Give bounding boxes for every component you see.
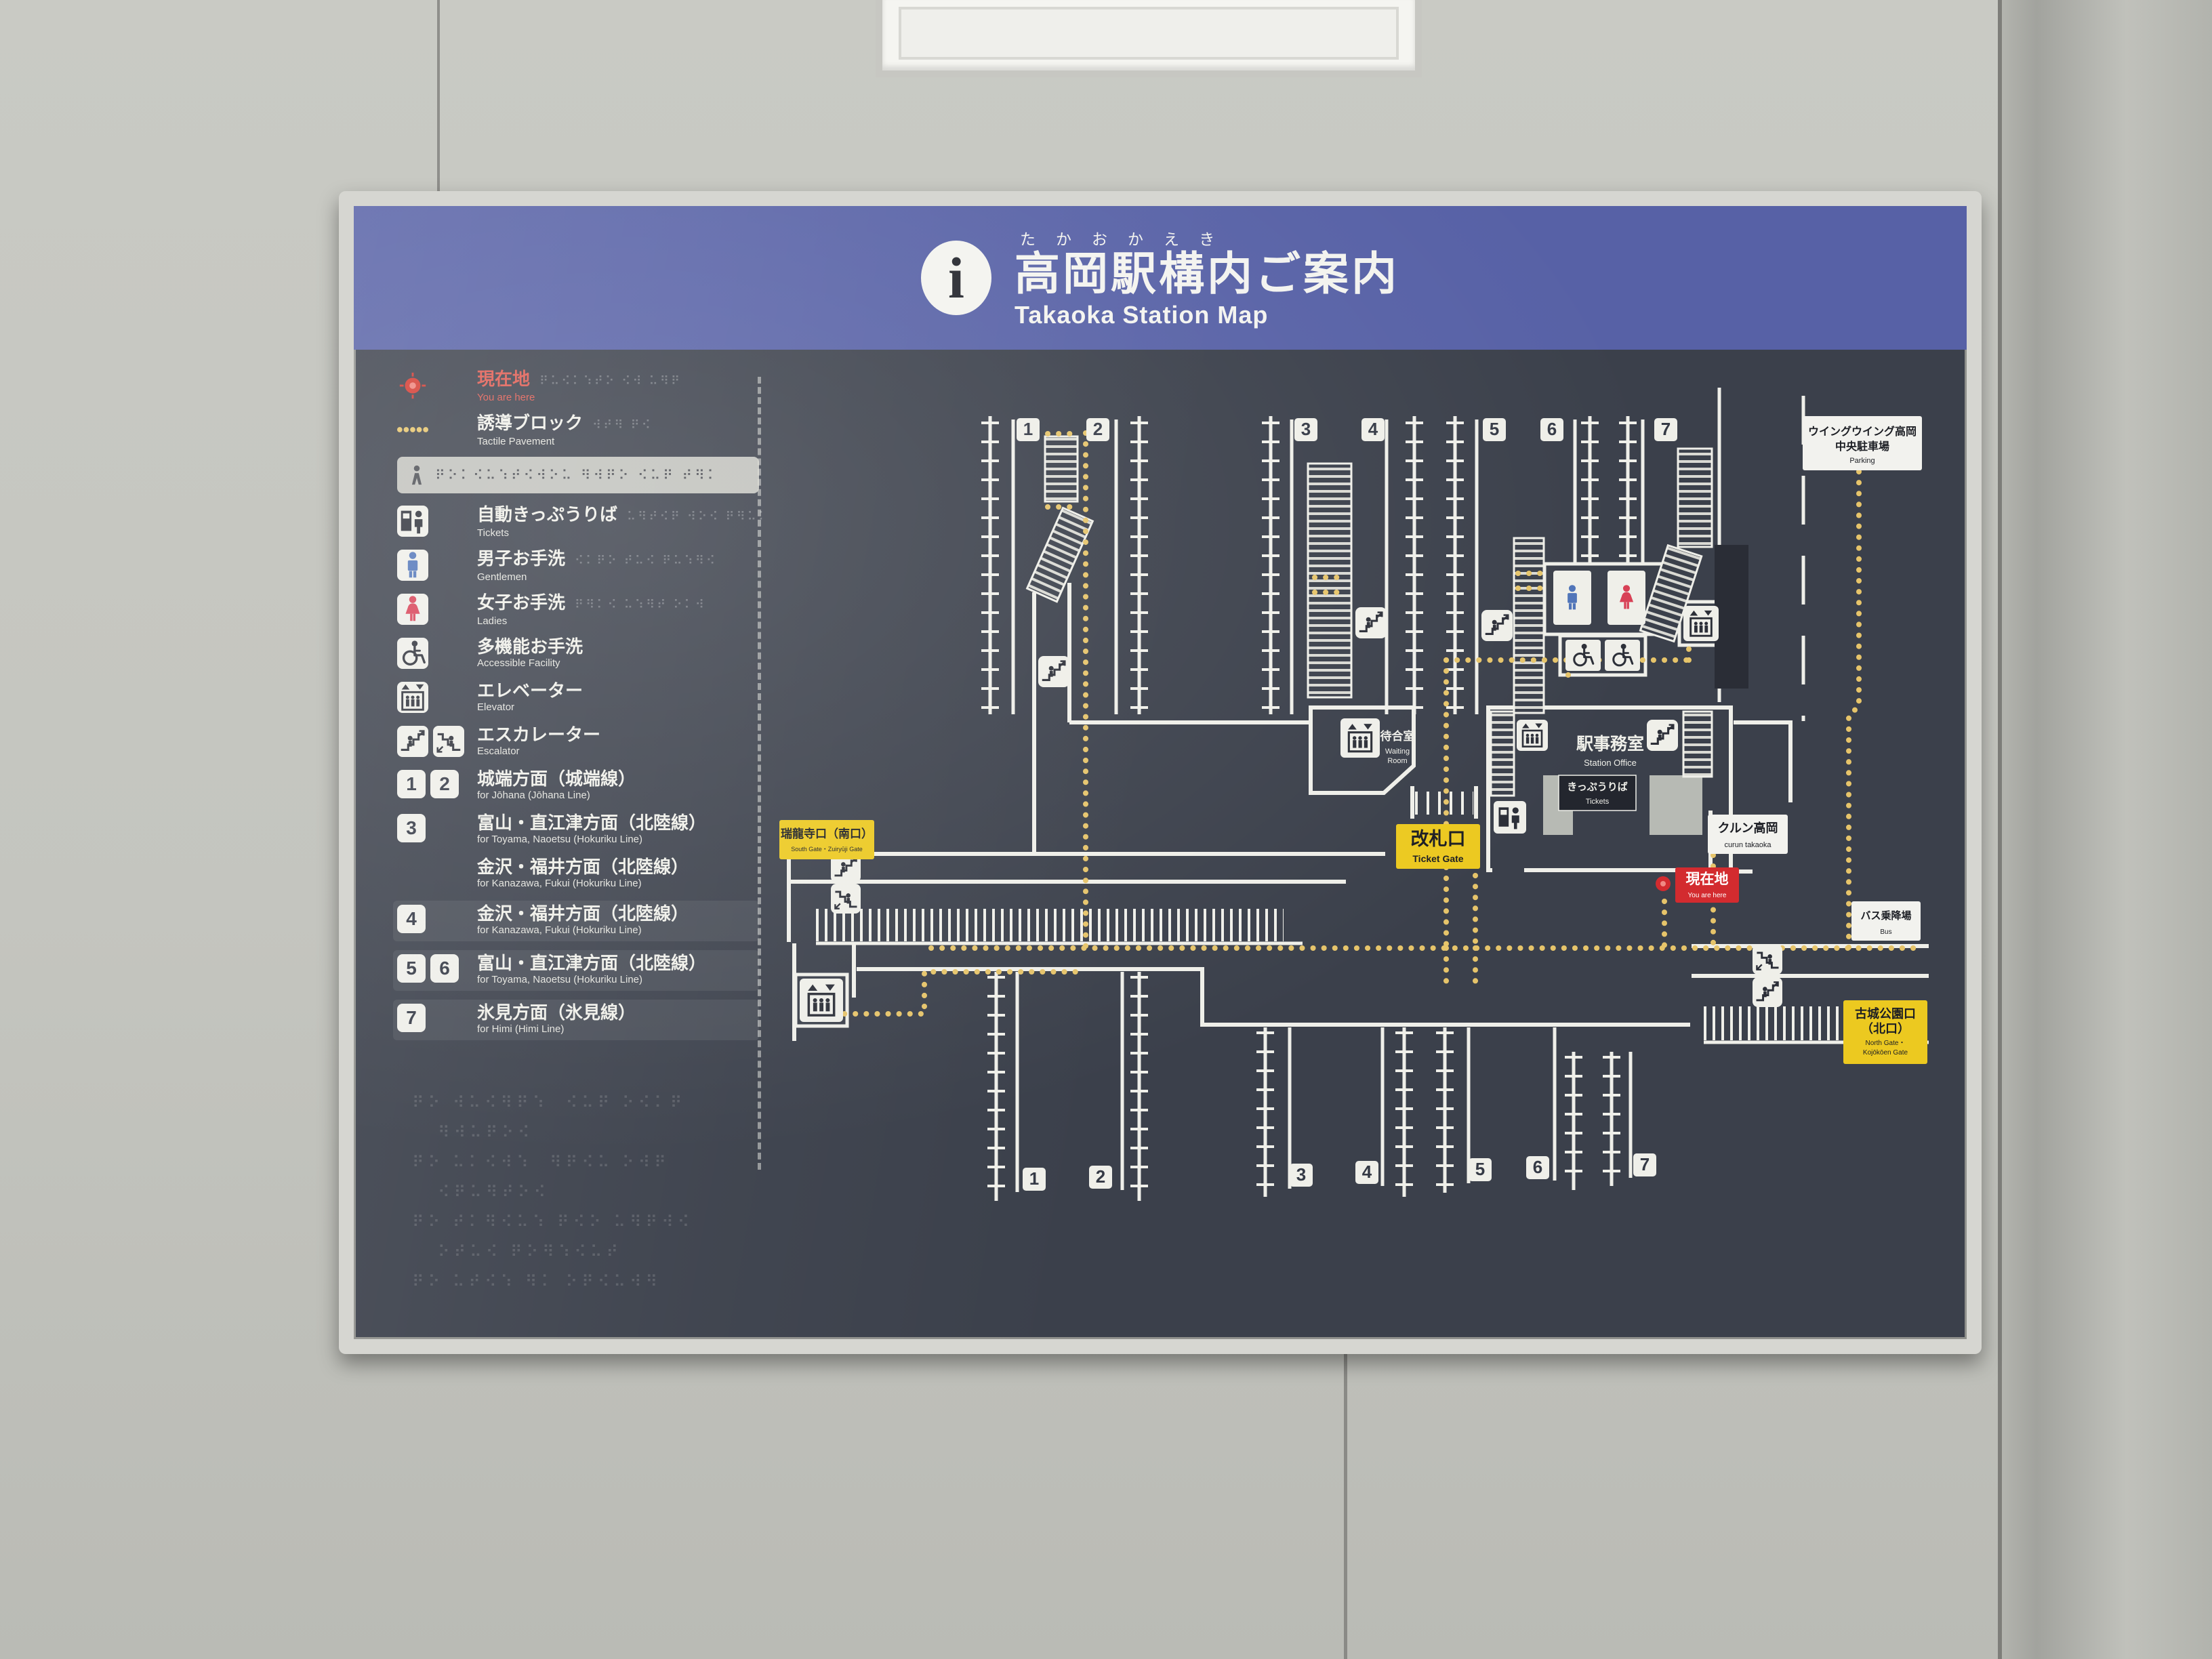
legend-item: 金沢・福井方面（北陸線） for Kanazawa, Fukui (Hokuri… xyxy=(397,857,759,892)
legend-item: 現在地⠟⠥⠪⠅⠱⠞⠕ ⠪⠺ ⠥⠻⠟ You are here xyxy=(397,369,759,404)
legend-item-icons xyxy=(397,680,477,713)
escalator-icon xyxy=(1481,610,1513,641)
legend-item-jp: エレベーター xyxy=(477,680,583,701)
waiting-room-label: 待合室 Waiting Room xyxy=(1380,729,1415,765)
svg-text:1: 1 xyxy=(1023,419,1033,439)
tickets-office-label: きっぷうりば Tickets xyxy=(1559,775,1636,811)
svg-text:2: 2 xyxy=(1096,1166,1105,1187)
parking-label: ウイングウイング高岡 中央駐車場 Parking xyxy=(1803,416,1922,470)
legend-item-jp: 金沢・福井方面（北陸線） xyxy=(477,857,689,877)
man-icon xyxy=(397,550,428,581)
elevator-icon xyxy=(397,682,428,713)
legend-item-en: You are here xyxy=(477,391,682,404)
svg-text:中央駐車場: 中央駐車場 xyxy=(1835,440,1889,453)
south-gate-label: 瑞龍寺口（南口） South Gate・Zuiryūji Gate xyxy=(779,820,874,859)
braille-annotation: ⠥⠻⠞⠪⠟ ⠺⠕⠪ ⠟⠻⠥⠅ xyxy=(627,510,769,523)
tracks-lower xyxy=(857,969,1690,1201)
legend-item-en: Gentlemen xyxy=(477,571,717,583)
platform-number-badge: 1 xyxy=(397,770,426,798)
legend-item-en: Tickets xyxy=(477,527,769,539)
legend-item: 自動きっぷうりば⠥⠻⠞⠪⠟ ⠺⠕⠪ ⠟⠻⠥⠅ Tickets xyxy=(397,504,759,539)
platform-badge: 7 xyxy=(1654,418,1677,441)
svg-text:Bus: Bus xyxy=(1880,928,1891,936)
legend-item-en: for Jōhana (Jōhana Line) xyxy=(477,789,636,802)
platform-number-badge: 2 xyxy=(430,770,459,798)
legend-item-jp: 誘導ブロック⠺⠞⠻ ⠟⠪ xyxy=(477,413,653,435)
board-title-block: たかおかえき 高岡駅構内ご案内 Takaoka Station Map xyxy=(1015,226,1399,329)
legend-item: 3 富山・直江津方面（北陸線） for Toyama, Naoetsu (Hok… xyxy=(397,813,759,848)
ticket-machine-icon xyxy=(1494,801,1526,834)
escalator-icon xyxy=(433,726,464,757)
station-office-label: 駅事務室 Station Office xyxy=(1576,734,1644,768)
svg-text:古城公園口: 古城公園口 xyxy=(1855,1006,1916,1021)
legend-item-icons xyxy=(397,413,477,445)
escalator-icon xyxy=(1753,977,1782,1007)
legend-item: 56 富山・直江津方面（北陸線） for Toyama, Naoetsu (Ho… xyxy=(393,950,759,991)
svg-text:Ticket Gate: Ticket Gate xyxy=(1412,853,1463,864)
platform-badge: 6 xyxy=(1526,1156,1549,1179)
svg-text:North Gate・: North Gate・ xyxy=(1866,1040,1906,1047)
title-furigana: たかおかえき xyxy=(1020,226,1399,249)
bus-label: バス乗降場 Bus xyxy=(1851,901,1921,941)
escalator-icon xyxy=(397,726,428,757)
svg-text:バス乗降場: バス乗降場 xyxy=(1860,909,1911,922)
legend-item-icons xyxy=(397,504,477,537)
legend-item-icons: 12 xyxy=(397,769,477,798)
north-gate-label: 古城公園口 （北口） North Gate・ Kojōkōen Gate xyxy=(1843,1000,1927,1064)
platform-badge: 7 xyxy=(1633,1153,1656,1176)
legend-item-jp: 女子お手洗⠟⠻⠅⠪ ⠥⠱⠻⠞ ⠕⠅⠺ xyxy=(477,592,706,615)
platform-number-badge: 3 xyxy=(397,814,426,842)
legend-item: エスカレーター Escalator xyxy=(397,724,759,760)
svg-text:Room: Room xyxy=(1387,757,1407,765)
platform-number-badge: 7 xyxy=(397,1004,426,1032)
wall-seam xyxy=(1344,1353,1347,1659)
legend-item-text: 多機能お手洗 Accessible Facility xyxy=(477,636,583,670)
legend-item-icons xyxy=(397,592,477,625)
platform-number-badge: 6 xyxy=(430,954,459,983)
svg-text:Parking: Parking xyxy=(1849,457,1875,465)
stairs-platform7-upper xyxy=(1678,449,1712,547)
legend-item-text: 金沢・福井方面（北陸線） for Kanazawa, Fukui (Hokuri… xyxy=(477,857,689,890)
platform-badge: 4 xyxy=(1355,1161,1378,1184)
legend-item-icons: 56 xyxy=(397,953,477,983)
platform-step-line xyxy=(857,969,1690,1025)
legend-item-jp: 現在地⠟⠥⠪⠅⠱⠞⠕ ⠪⠺ ⠥⠻⠟ xyxy=(477,369,682,391)
legend-item-icons: 4 xyxy=(397,903,477,933)
platform-badge: 6 xyxy=(1540,418,1563,441)
wall-seam xyxy=(437,0,440,198)
svg-text:6: 6 xyxy=(1533,1157,1542,1177)
platform-badge: 5 xyxy=(1469,1158,1492,1181)
svg-text:4: 4 xyxy=(1362,1162,1372,1182)
escalator-icon xyxy=(1647,720,1678,751)
woman-icon xyxy=(397,594,428,625)
platform-badge: 4 xyxy=(1361,418,1385,441)
legend-item-en: for Kanazawa, Fukui (Hokuriku Line) xyxy=(477,877,689,890)
elevator-icon xyxy=(800,979,843,1022)
board-title: 高岡駅構内ご案内 xyxy=(1015,251,1399,298)
svg-text:5: 5 xyxy=(1475,1159,1485,1179)
platform-badge: 3 xyxy=(1290,1164,1313,1187)
stairs-platform34 xyxy=(1308,464,1351,697)
braille-paragraph: ⠟⠕ ⠺⠥⠪⠻⠟⠱ ⠪⠥⠟ ⠕⠪⠅⠟ ⠻⠺⠥⠟⠕⠪ ⠟⠕ ⠥⠅⠪⠺⠱ ⠻⠟⠪⠥ … xyxy=(412,1088,693,1297)
svg-text:現在地: 現在地 xyxy=(1686,871,1729,887)
board-subtitle: Takaoka Station Map xyxy=(1015,301,1399,329)
braille-annotation: ⠟⠻⠅⠪ ⠥⠱⠻⠞ ⠕⠅⠺ xyxy=(575,598,706,611)
board-header: i たかおかえき 高岡駅構内ご案内 Takaoka Station Map xyxy=(354,206,1967,350)
legend-item: 誘導ブロック⠺⠞⠻ ⠟⠪ Tactile Pavement xyxy=(397,413,759,448)
wall-frame-object xyxy=(876,0,1422,77)
svg-text:待合室: 待合室 xyxy=(1380,729,1415,743)
escalator-icon xyxy=(1038,656,1069,687)
platform-number-badge: 5 xyxy=(397,954,426,983)
legend-item: エレベーター Elevator xyxy=(397,680,759,716)
legend-item-jp: 氷見方面（氷見線） xyxy=(477,1002,636,1023)
braille-annotation: ⠪⠅⠟⠕ ⠞⠥⠪ ⠟⠥⠱⠻⠪ xyxy=(575,554,717,567)
svg-text:1: 1 xyxy=(1029,1168,1039,1189)
legend-item-text: 城端方面（城端線） for Jōhana (Jōhana Line) xyxy=(477,769,636,802)
svg-text:7: 7 xyxy=(1661,419,1671,439)
legend-item-text: 誘導ブロック⠺⠞⠻ ⠟⠪ Tactile Pavement xyxy=(477,413,653,448)
svg-text:Kojōkōen Gate: Kojōkōen Gate xyxy=(1863,1049,1908,1057)
legend-item-text: エスカレーター Escalator xyxy=(477,724,600,758)
wall-right-panel xyxy=(1998,0,2212,1659)
legend-item-icons xyxy=(397,857,477,858)
legend-item-en: for Himi (Himi Line) xyxy=(477,1023,636,1036)
legend-item-text: エレベーター Elevator xyxy=(477,680,583,714)
legend-item-text: 金沢・福井方面（北陸線） for Kanazawa, Fukui (Hokuri… xyxy=(477,903,689,937)
floor-gray-right xyxy=(1650,775,1702,835)
svg-text:ウイングウイング高岡: ウイングウイング高岡 xyxy=(1808,425,1917,438)
platform-number-badge: 4 xyxy=(397,905,426,933)
legend-item-en: for Toyama, Naoetsu (Hokuriku Line) xyxy=(477,973,706,986)
wheelchair-icon xyxy=(1565,640,1601,671)
legend-item-icons: 7 xyxy=(397,1002,477,1032)
legend-item-jp: 城端方面（城端線） xyxy=(477,769,636,789)
stairs-platform12-diagonal xyxy=(1027,508,1093,601)
stairs-office-right xyxy=(1683,712,1712,777)
curun-wall xyxy=(1734,722,1790,802)
platform-badge: 3 xyxy=(1294,418,1317,441)
platform-badge: 1 xyxy=(1017,418,1040,441)
legend-item-text: 富山・直江津方面（北陸線） for Toyama, Naoetsu (Hokur… xyxy=(477,953,706,986)
svg-text:curun takaoka: curun takaoka xyxy=(1724,841,1771,849)
legend-item-icons xyxy=(397,724,477,757)
svg-text:You are here: You are here xyxy=(1688,892,1727,899)
legend-item-jp: 自動きっぷうりば⠥⠻⠞⠪⠟ ⠺⠕⠪ ⠟⠻⠥⠅ xyxy=(477,504,769,527)
elevator-icon xyxy=(1683,606,1719,641)
legend-item-jp: 男子お手洗⠪⠅⠟⠕ ⠞⠥⠪ ⠟⠥⠱⠻⠪ xyxy=(477,548,717,571)
tactile-icon xyxy=(397,414,428,445)
legend-item-text: 男子お手洗⠪⠅⠟⠕ ⠞⠥⠪ ⠟⠥⠱⠻⠪ Gentlemen xyxy=(477,548,717,583)
information-icon: i xyxy=(921,241,991,315)
svg-text:7: 7 xyxy=(1640,1154,1650,1174)
svg-text:きっぷうりば: きっぷうりば xyxy=(1567,781,1627,793)
legend-item: 7 氷見方面（氷見線） for Himi (Himi Line) xyxy=(393,1000,759,1040)
braille-strip: ⠟⠕⠅⠪⠥⠱⠞⠪⠺⠕⠥ ⠻⠺⠟⠕ ⠪⠥⠟ ⠞⠻⠅ xyxy=(397,457,759,493)
legend-item-text: 女子お手洗⠟⠻⠅⠪ ⠥⠱⠻⠞ ⠕⠅⠺ Ladies xyxy=(477,592,706,628)
legend-item-text: 氷見方面（氷見線） for Himi (Himi Line) xyxy=(477,1002,636,1036)
escalator-icon xyxy=(831,884,861,914)
curun-takaoka-label: クルン高岡 curun takaoka xyxy=(1708,815,1788,854)
station-map-board: i たかおかえき 高岡駅構内ご案内 Takaoka Station Map 現在… xyxy=(339,191,1982,1354)
stairs-platform12-upper xyxy=(1045,436,1078,501)
dot-icon xyxy=(397,370,428,401)
escalator-icon xyxy=(1355,607,1387,638)
svg-text:3: 3 xyxy=(1301,419,1311,439)
stairs-office-left xyxy=(1491,712,1514,796)
braille-annotation: ⠟⠥⠪⠅⠱⠞⠕ ⠪⠺ ⠥⠻⠟ xyxy=(539,374,682,388)
svg-text:4: 4 xyxy=(1368,419,1378,439)
svg-text:2: 2 xyxy=(1093,419,1103,439)
platform-badge: 1 xyxy=(1023,1168,1046,1191)
machine-icon xyxy=(397,506,428,537)
platform-badges-bottom: 1 2 3 4 5 6 7 xyxy=(1023,1153,1656,1191)
legend-item: 4 金沢・福井方面（北陸線） for Kanazawa, Fukui (Hoku… xyxy=(393,901,759,941)
photo-of-station-map-sign: i たかおかえき 高岡駅構内ご案内 Takaoka Station Map 現在… xyxy=(0,0,2212,1659)
svg-text:South Gate・Zuiryūji Gate: South Gate・Zuiryūji Gate xyxy=(791,846,863,853)
braille-annotation: ⠺⠞⠻ ⠟⠪ xyxy=(592,418,653,432)
svg-text:改札口: 改札口 xyxy=(1411,829,1466,849)
legend-item-en: for Kanazawa, Fukui (Hokuriku Line) xyxy=(477,924,689,937)
svg-text:駅事務室: 駅事務室 xyxy=(1576,734,1644,754)
dark-wall xyxy=(1715,545,1748,689)
legend-item-text: 自動きっぷうりば⠥⠻⠞⠪⠟ ⠺⠕⠪ ⠟⠻⠥⠅ Tickets xyxy=(477,504,769,539)
ladies-icon xyxy=(1607,571,1645,625)
ticket-gate-label: 改札口 Ticket Gate xyxy=(1396,824,1480,869)
legend-item-text: 現在地⠟⠥⠪⠅⠱⠞⠕ ⠪⠺ ⠥⠻⠟ You are here xyxy=(477,369,682,404)
wheelchair-icon xyxy=(1605,640,1640,671)
platform-badge: 2 xyxy=(1089,1166,1112,1189)
legend-item-jp: 富山・直江津方面（北陸線） xyxy=(477,953,706,973)
legend-item-jp: 多機能お手洗 xyxy=(477,636,583,657)
svg-text:6: 6 xyxy=(1547,419,1557,439)
legend-item: 多機能お手洗 Accessible Facility xyxy=(397,636,759,672)
legend-item-text: 富山・直江津方面（北陸線） for Toyama, Naoetsu (Hokur… xyxy=(477,813,706,846)
svg-text:瑞龍寺口（南口）: 瑞龍寺口（南口） xyxy=(781,827,873,840)
platform-badge: 2 xyxy=(1086,418,1109,441)
stairs-platform56 xyxy=(1514,538,1544,713)
svg-text:Tickets: Tickets xyxy=(1586,798,1610,806)
wheelchair-icon xyxy=(397,638,428,669)
platform-badge: 5 xyxy=(1483,418,1506,441)
wall-frame-inner xyxy=(899,7,1399,60)
legend-item: 男子お手洗⠪⠅⠟⠕ ⠞⠥⠪ ⠟⠥⠱⠻⠪ Gentlemen xyxy=(397,548,759,583)
svg-text:クルン高岡: クルン高岡 xyxy=(1717,821,1778,835)
legend: 現在地⠟⠥⠪⠅⠱⠞⠕ ⠪⠺ ⠥⠻⠟ You are here 誘導ブロック⠺⠞⠻… xyxy=(397,369,759,1049)
svg-text:3: 3 xyxy=(1296,1164,1306,1185)
svg-text:（北口）: （北口） xyxy=(1861,1022,1910,1036)
legend-item-jp: エスカレーター xyxy=(477,724,600,745)
legend-item-en: Tactile Pavement xyxy=(477,435,653,448)
legend-item-en: Elevator xyxy=(477,701,583,714)
legend-item-en: Escalator xyxy=(477,745,600,758)
legend-item: 女子お手洗⠟⠻⠅⠪ ⠥⠱⠻⠞ ⠕⠅⠺ Ladies xyxy=(397,592,759,628)
escalator-icon xyxy=(1753,945,1782,975)
legend-item-en: Ladies xyxy=(477,615,706,628)
legend-item-icons xyxy=(397,548,477,581)
svg-text:5: 5 xyxy=(1490,419,1499,439)
legend-item-icons xyxy=(397,636,477,669)
you-are-here-marker: 現在地 You are here xyxy=(1656,867,1739,903)
legend-item-icons xyxy=(397,369,477,401)
gentlemen-icon xyxy=(1553,571,1591,625)
legend-item: 12 城端方面（城端線） for Jōhana (Jōhana Line) xyxy=(397,769,759,804)
legend-item-icons: 3 xyxy=(397,813,477,842)
legend-item-jp: 金沢・福井方面（北陸線） xyxy=(477,903,689,924)
elevator-icon xyxy=(1517,720,1548,751)
legend-item-en: Accessible Facility xyxy=(477,657,583,670)
station-floor-map: ウイングウイング高岡 中央駐車場 Parking 瑞龍寺口（南口） South … xyxy=(769,369,1950,1320)
svg-text:Station Office: Station Office xyxy=(1584,758,1637,768)
elevator-icon xyxy=(1340,718,1380,758)
svg-text:Waiting: Waiting xyxy=(1385,747,1410,756)
legend-item-en: for Toyama, Naoetsu (Hokuriku Line) xyxy=(477,833,706,846)
legend-item-jp: 富山・直江津方面（北陸線） xyxy=(477,813,706,833)
